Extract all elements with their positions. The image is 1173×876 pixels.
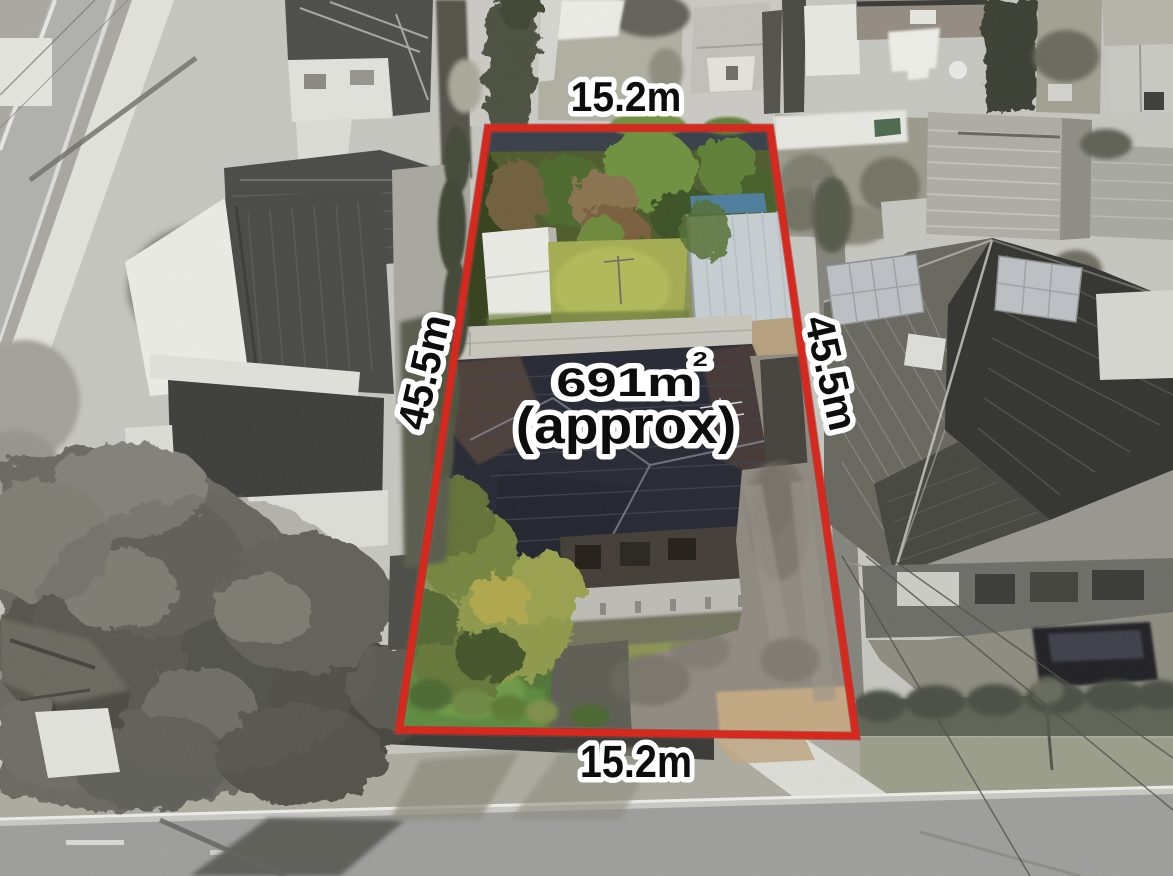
- svg-text:15.2m: 15.2m: [580, 737, 692, 787]
- svg-text:(approx): (approx): [516, 396, 736, 454]
- svg-text:15.2m: 15.2m: [571, 73, 682, 121]
